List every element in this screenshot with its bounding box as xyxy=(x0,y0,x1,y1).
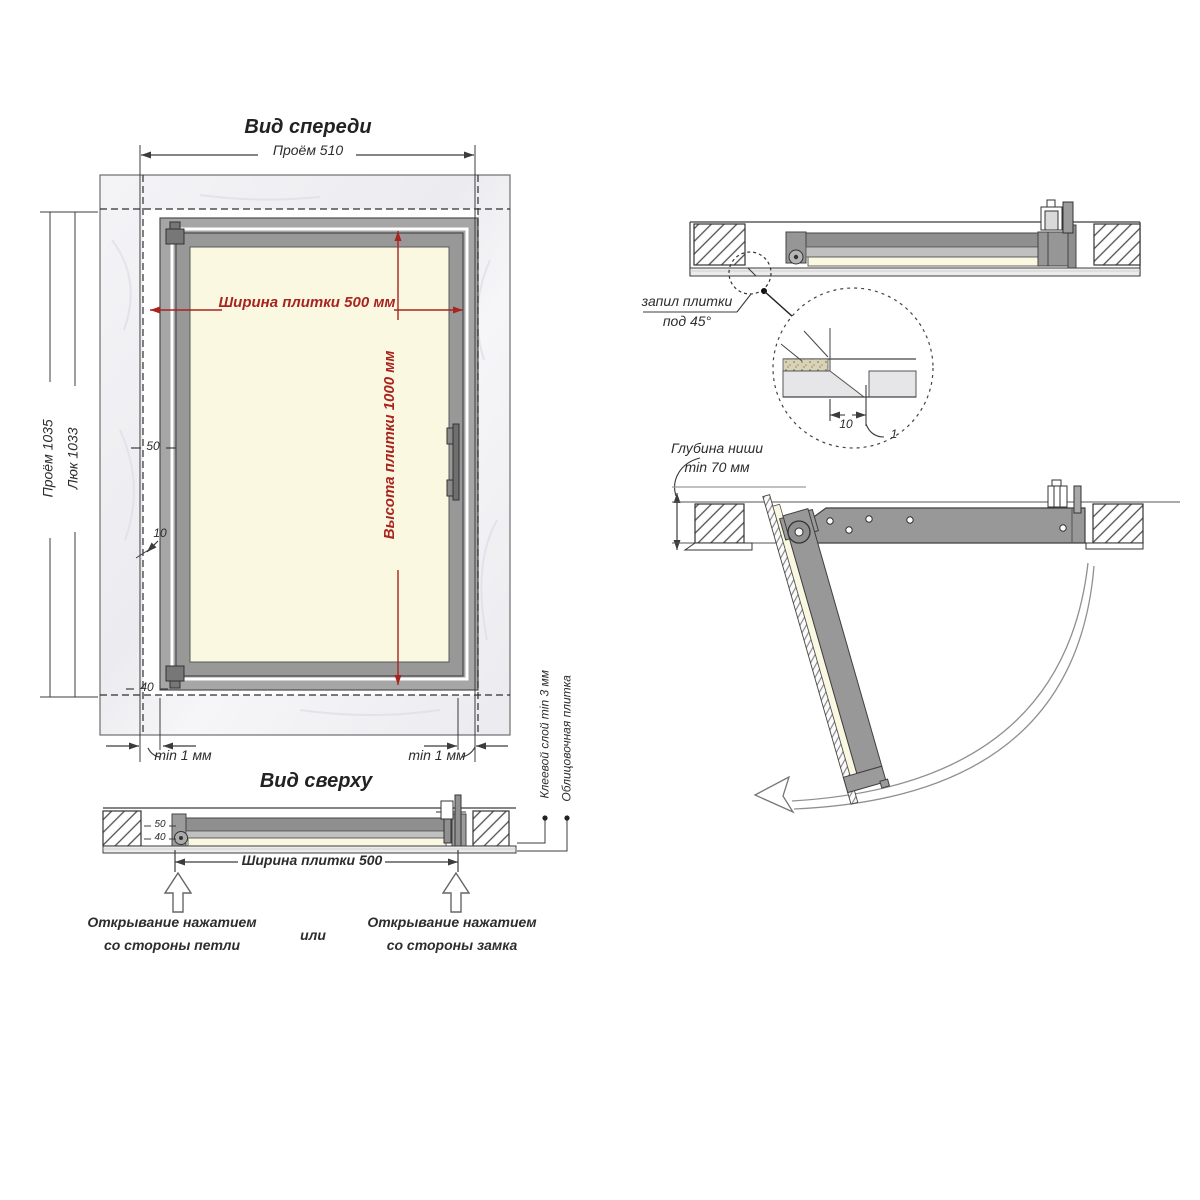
open-lock-label-2: со стороны замка xyxy=(342,938,562,953)
adhesive-layer xyxy=(783,359,828,371)
frame-bar xyxy=(800,508,1085,543)
drawing-canvas: Вид спереди Проём 510 Ширина плитки 500 … xyxy=(0,0,1200,1200)
top-dim-50-label: 50 xyxy=(149,820,171,831)
front-view xyxy=(40,145,510,762)
press-arrow-lock-icon xyxy=(443,873,469,912)
detail-dim-10-label: 10 xyxy=(832,418,860,431)
dim-opening-width-label: Проём 510 xyxy=(233,143,383,158)
wall-tile-edge xyxy=(869,371,916,397)
dim-10-label: 10 xyxy=(148,527,172,540)
adhesive-layer-label: Клеевой слой min 3 мм xyxy=(539,654,552,814)
open-lock-label-1: Открывание нажатием xyxy=(342,915,562,930)
detail-dim-1-label: 1 xyxy=(884,428,904,441)
wall-block-left xyxy=(103,811,141,846)
wall-block-left xyxy=(695,504,744,543)
door-profile-light xyxy=(186,831,452,838)
wall-foot-left xyxy=(685,543,752,550)
facing-tile-label: Облицовочная плитка xyxy=(561,658,574,818)
technical-linework xyxy=(0,0,1200,1200)
wall-foot-right xyxy=(1086,543,1143,549)
swing-arrow-icon xyxy=(755,777,793,812)
open-section-view xyxy=(672,458,1180,812)
top-dim-tile-width-label: Ширина плитки 500 xyxy=(212,853,412,868)
wall-block-right xyxy=(1094,224,1140,265)
tile-cut-label-1: запил плитки xyxy=(637,294,737,309)
door-profile-dark xyxy=(806,233,1076,247)
open-hinge-label-1: Открывание нажатием xyxy=(62,915,282,930)
wall-block-right xyxy=(1093,504,1143,543)
min-gap-left-label: min 1 мм xyxy=(143,748,223,763)
min-gap-right-label: min 1 мм xyxy=(397,748,477,763)
dim-opening-height-label: Проём 1035 xyxy=(41,373,56,543)
dim-tile-height-label: Высота плитки 1000 мм xyxy=(382,315,398,575)
wall-block-left xyxy=(694,224,745,265)
or-label: или xyxy=(283,928,343,943)
tile-cut-label-2: под 45° xyxy=(637,314,737,329)
facing-tile-layer xyxy=(690,268,1140,276)
open-hinge-label-2: со стороны петли xyxy=(62,938,282,953)
latch-mechanism xyxy=(1041,200,1073,233)
door-profile-light xyxy=(806,247,1068,257)
niche-depth-label-1: Глубина ниши xyxy=(642,441,792,456)
layer-leaders xyxy=(517,815,570,851)
adhesive-strip xyxy=(808,257,1064,266)
dim-tile-width-label: Ширина плитки 500 мм xyxy=(207,295,407,311)
front-view-title: Вид спереди xyxy=(208,117,408,138)
adhesive-strip xyxy=(188,838,446,846)
press-arrow-hinge-icon xyxy=(165,873,191,912)
dim-40-label: 40 xyxy=(135,681,159,694)
dim-hatch-height-label: Люк 1033 xyxy=(66,373,81,543)
wall-block-right xyxy=(473,811,509,846)
dim-50-label: 50 xyxy=(141,440,165,453)
top-view-title: Вид сверху xyxy=(216,771,416,792)
top-dim-40-label: 40 xyxy=(149,833,171,844)
latch-mechanism xyxy=(1048,480,1067,507)
niche-depth-label-2: min 70 мм xyxy=(642,460,792,475)
lock-plate xyxy=(1074,486,1081,513)
door-profile-dark xyxy=(186,818,452,831)
